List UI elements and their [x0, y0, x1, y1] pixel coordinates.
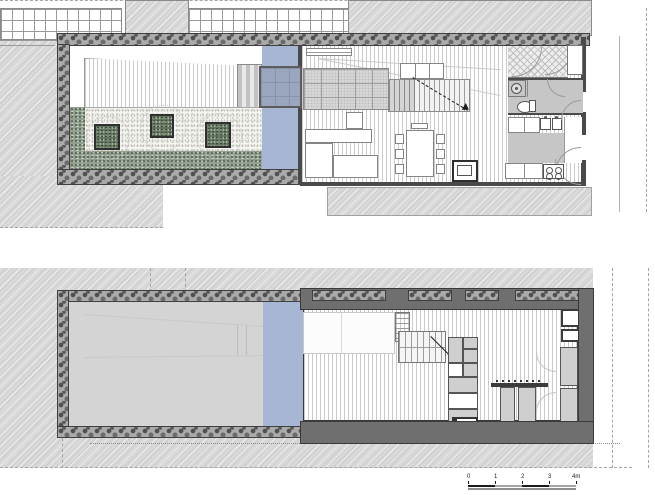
stair-landing-upper	[400, 63, 444, 79]
neighbor-tiled-roof-mid	[188, 8, 350, 36]
north-stone-wall-lower	[57, 290, 303, 302]
lot-line-1	[150, 268, 151, 292]
south-stone-wall-lower-garden	[57, 426, 303, 438]
sink-tap-1	[544, 116, 547, 119]
dining-chair-top	[411, 123, 428, 129]
glass-bridge	[259, 66, 302, 108]
boundary-line-southwest	[0, 227, 163, 228]
dining-chair-l2	[395, 149, 404, 159]
planter-box-3	[205, 122, 231, 148]
winder-line	[399, 347, 445, 348]
south-stone-wall-garden	[57, 169, 303, 185]
street-axis-line	[646, 8, 647, 212]
wardrobe-1	[560, 347, 578, 386]
water-feature-lower	[263, 302, 303, 426]
scale-label-1: 1	[494, 474, 497, 480]
duct-inner	[457, 165, 472, 176]
west-stone-wall-lower	[57, 290, 69, 438]
rubble-group-2	[408, 290, 452, 301]
sink-basin-2	[552, 118, 562, 130]
west-stone-wall-upper	[57, 44, 70, 185]
garden-deck	[84, 58, 239, 112]
cabinet-1	[448, 337, 463, 363]
cabinet-6	[448, 377, 478, 393]
table-support-2	[518, 387, 536, 423]
planter-box-1	[94, 124, 120, 150]
sink-basin-1	[540, 118, 551, 130]
street-facade-bottom	[581, 160, 586, 183]
dining-table	[406, 130, 434, 177]
bath-partition	[527, 80, 528, 97]
sofa-seat	[333, 155, 378, 178]
landing-divider-2	[429, 64, 430, 78]
scale-tick-4	[576, 481, 577, 484]
north-stone-wall-upper	[57, 33, 590, 46]
projection-step-line-1	[237, 325, 238, 355]
toilet-tank	[529, 100, 536, 112]
neighbor-building-2	[348, 0, 592, 36]
kitchen-counter-top	[508, 117, 540, 133]
shelf-line	[307, 52, 351, 53]
sofa-chaise	[305, 143, 333, 178]
counter-divider-2	[524, 164, 525, 178]
table-edge-detail	[496, 380, 544, 382]
stair-treads-upper	[388, 79, 470, 112]
cabinet-3	[463, 349, 478, 363]
wardrobe-2	[560, 388, 578, 422]
scale-tick-2	[522, 481, 523, 484]
shower-drain-icon	[511, 83, 522, 94]
burner-icon-3	[546, 173, 553, 180]
scale-label-4m: 4m	[572, 474, 580, 480]
stove-duct-box-upper	[452, 160, 478, 182]
street-curb-line	[619, 36, 620, 212]
counter-divider	[524, 118, 525, 132]
dining-chair-r1	[436, 134, 445, 144]
rubble-group-4	[515, 290, 583, 301]
south-wall-lower	[300, 421, 594, 444]
scale-tick-3	[549, 481, 550, 484]
rubble-group-3	[465, 290, 499, 301]
scale-bar-seg-2	[522, 485, 549, 487]
stove	[543, 164, 564, 179]
dining-chair-r3	[436, 164, 445, 174]
dining-chair-l3	[395, 164, 404, 174]
kitchen-counter-bottom	[505, 163, 543, 179]
skylight-void	[303, 68, 389, 110]
neighbor-yard-left	[0, 40, 57, 178]
water-feature-upper	[262, 46, 300, 170]
cabinet-2	[463, 337, 478, 349]
lot-line-2	[185, 268, 186, 292]
kitchen-floor	[508, 133, 566, 163]
neighbor-yard-line	[0, 45, 55, 46]
scale-label-3: 3	[548, 474, 551, 480]
understair-line	[341, 313, 342, 353]
cabinet-5	[463, 363, 478, 377]
coffee-table	[346, 112, 363, 129]
lot-line-3	[62, 438, 63, 468]
dining-chair-l1	[395, 134, 404, 144]
sink-tap-2	[555, 116, 558, 119]
scale-bar-base	[468, 488, 576, 490]
dining-chair-r2	[436, 149, 445, 159]
landing-divider-1	[415, 64, 416, 78]
stair-treads-lower	[398, 331, 446, 363]
understair-zone	[303, 312, 395, 354]
floor-plan-sheet: 0 1 2 3 4m	[0, 0, 655, 495]
stair-shading	[389, 80, 415, 111]
scale-bar-seg-1	[468, 485, 495, 487]
street-edge-lower	[648, 268, 649, 468]
cabinet-4	[448, 363, 463, 377]
scale-tick-0	[468, 481, 469, 484]
scale-tick-1	[495, 481, 496, 484]
cabinet-7	[448, 393, 478, 409]
shower-dot	[515, 87, 518, 90]
neighbor-building-1	[125, 0, 189, 36]
street-axis-lower	[612, 268, 613, 468]
scale-label-0: 0	[467, 474, 470, 480]
south-wall-upper	[300, 182, 586, 186]
lower-garage-court	[69, 302, 263, 426]
wall-shelf	[306, 48, 352, 56]
sofa-back	[305, 129, 372, 143]
rubble-group-1	[312, 290, 386, 301]
table-support-1	[500, 387, 515, 423]
entry-niche	[567, 45, 583, 75]
projection-step-line-2	[246, 325, 247, 355]
neighbor-building-south	[327, 187, 592, 216]
planter-box-2	[150, 114, 174, 138]
scale-label-2: 2	[521, 474, 524, 480]
scale-bar: 0 1 2 3 4m	[460, 472, 590, 492]
boundary-line-south-lower	[0, 467, 632, 468]
burner-icon-4	[555, 173, 562, 180]
